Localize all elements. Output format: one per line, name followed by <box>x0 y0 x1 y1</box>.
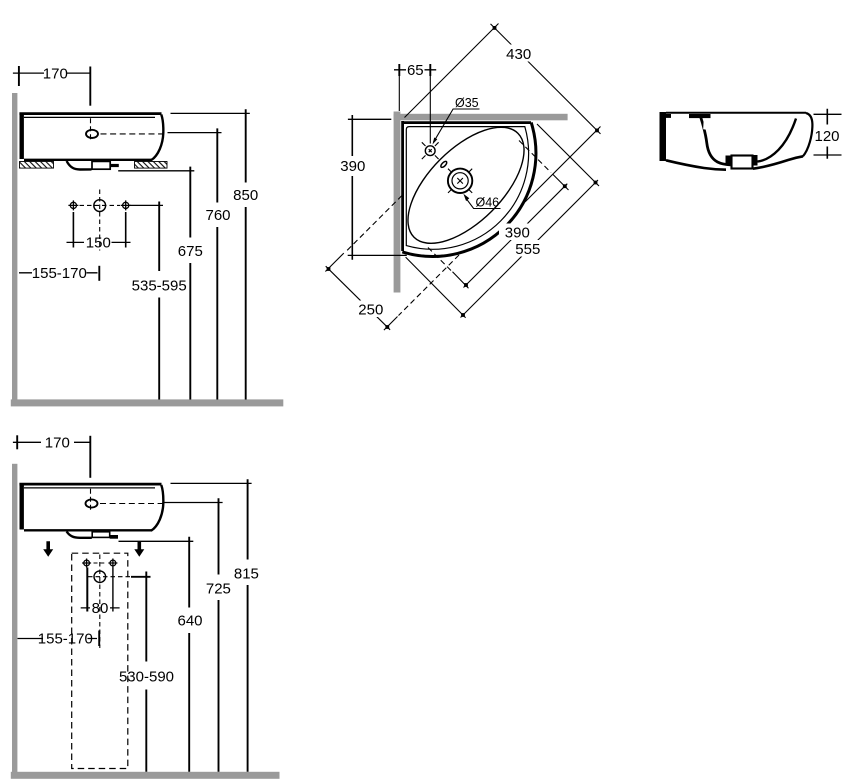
svg-text:555: 555 <box>515 241 540 258</box>
svg-text:170: 170 <box>45 435 70 452</box>
svg-text:530-590: 530-590 <box>119 668 174 685</box>
svg-text:675: 675 <box>178 243 203 260</box>
svg-text:120: 120 <box>814 128 839 145</box>
svg-text:760: 760 <box>205 207 230 224</box>
svg-text:430: 430 <box>506 46 531 63</box>
svg-text:Ø46: Ø46 <box>476 196 500 210</box>
svg-text:150: 150 <box>86 235 111 252</box>
svg-text:80: 80 <box>92 600 109 617</box>
svg-text:155-170: 155-170 <box>32 265 87 282</box>
svg-text:815: 815 <box>234 565 259 582</box>
svg-text:535-595: 535-595 <box>132 277 187 294</box>
svg-text:725: 725 <box>206 580 231 597</box>
svg-text:170: 170 <box>43 65 68 82</box>
svg-text:250: 250 <box>358 301 383 318</box>
svg-text:390: 390 <box>505 224 530 241</box>
svg-text:850: 850 <box>233 187 258 204</box>
svg-text:Ø35: Ø35 <box>455 96 479 110</box>
svg-text:390: 390 <box>340 158 365 175</box>
svg-text:640: 640 <box>177 613 202 630</box>
svg-text:155-170: 155-170 <box>38 631 93 648</box>
svg-text:65: 65 <box>407 62 424 79</box>
